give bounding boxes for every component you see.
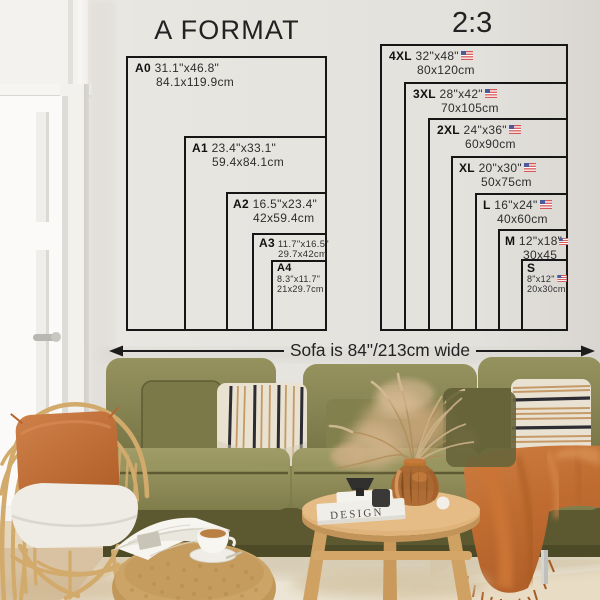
svg-text:Sofa is 84"/213cm wide: Sofa is 84"/213cm wide xyxy=(290,340,470,360)
